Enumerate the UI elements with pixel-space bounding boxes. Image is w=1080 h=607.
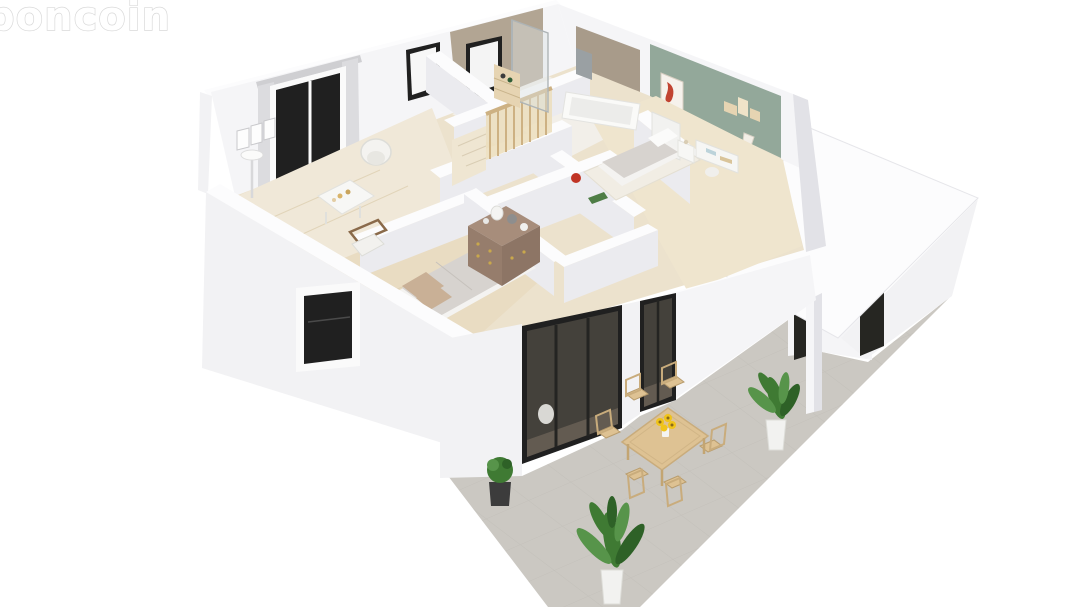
chair-through-glass xyxy=(538,404,554,424)
door-pier xyxy=(622,301,640,426)
west-corner-edge xyxy=(198,92,212,194)
floor-plan-render: boncoin xyxy=(0,0,1080,607)
leboncoin-watermark: boncoin xyxy=(0,0,171,40)
living-room-corner-block xyxy=(440,324,522,478)
master-window-exterior xyxy=(296,282,360,372)
desk-chair xyxy=(705,167,719,177)
floor-plan-scene: boncoin xyxy=(0,0,1080,607)
patio-column xyxy=(806,293,822,414)
red-floor-object xyxy=(571,173,581,183)
armchair-round xyxy=(361,139,391,165)
